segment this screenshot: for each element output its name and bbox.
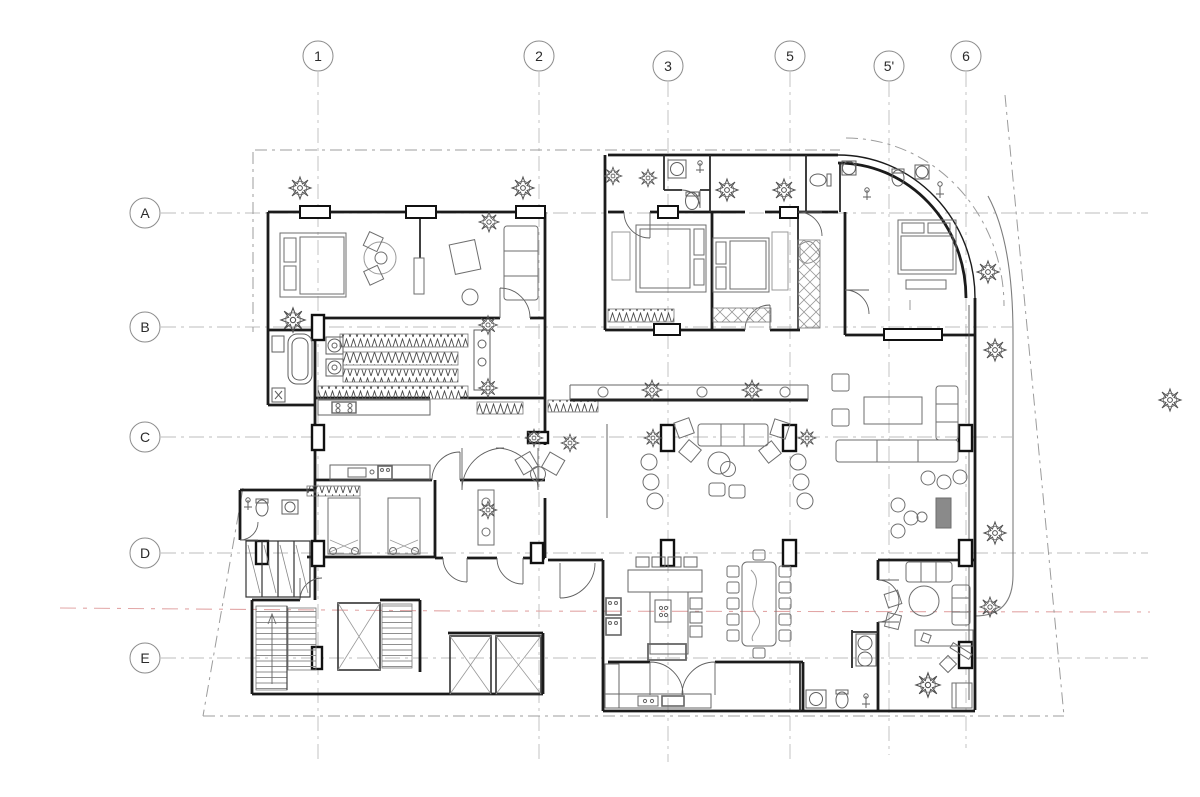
planter-bar bbox=[570, 385, 808, 400]
dining-set bbox=[727, 550, 791, 658]
grid-label-row-a: A bbox=[140, 205, 150, 221]
grid-bubble-row-d: D bbox=[130, 538, 160, 568]
grid-bubble-col-6: 6 bbox=[951, 41, 981, 71]
office-furniture bbox=[884, 562, 973, 708]
grid-label-col-1: 1 bbox=[314, 48, 322, 64]
grid-label-row-d: D bbox=[140, 545, 150, 561]
floor-plan-viewport: 1 2 3 5 5' 6 A B bbox=[0, 0, 1200, 797]
grid-bubble-col-1: 1 bbox=[303, 41, 333, 71]
grid-bubble-row-b: B bbox=[130, 312, 160, 342]
grid-label-row-c: C bbox=[140, 429, 150, 445]
grid-bubble-row-a: A bbox=[130, 198, 160, 228]
grid-bubble-col-3: 3 bbox=[653, 51, 683, 81]
grid-label-row-e: E bbox=[140, 650, 149, 666]
grid-bubbles: 1 2 3 5 5' 6 A B bbox=[130, 41, 981, 673]
grid-label-col-6: 6 bbox=[962, 48, 970, 64]
plants bbox=[281, 167, 1181, 697]
grid-label-row-b: B bbox=[140, 319, 149, 335]
grid-label-col-5: 5 bbox=[786, 48, 794, 64]
grid-label-col-5p: 5' bbox=[884, 58, 894, 74]
grid-bubble-row-c: C bbox=[130, 422, 160, 452]
grid-bubble-col-5p: 5' bbox=[874, 51, 904, 81]
bath-fixtures bbox=[244, 160, 944, 708]
elevators bbox=[450, 636, 541, 694]
columns bbox=[256, 315, 972, 669]
grid-label-col-3: 3 bbox=[664, 58, 672, 74]
grid-bubble-col-5: 5 bbox=[775, 41, 805, 71]
grid-bubble-col-2: 2 bbox=[524, 41, 554, 71]
floor-plan-canvas: 1 2 3 5 5' 6 A B bbox=[0, 0, 1200, 797]
grid-label-col-2: 2 bbox=[535, 48, 543, 64]
grid-bubble-row-e: E bbox=[130, 643, 160, 673]
stairs bbox=[256, 603, 412, 690]
exterior-walls bbox=[240, 155, 975, 711]
family-room-furniture bbox=[832, 374, 967, 538]
